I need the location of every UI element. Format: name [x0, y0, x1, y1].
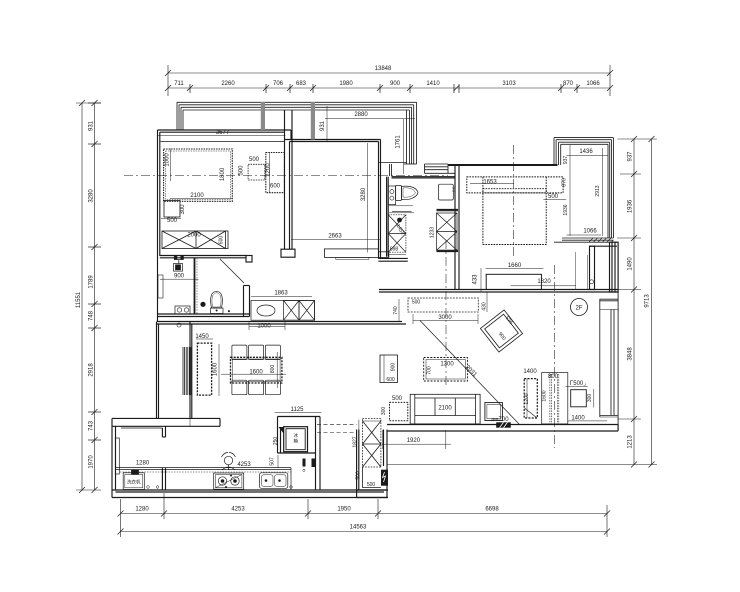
svg-text:2100: 2100 — [190, 193, 204, 199]
svg-text:800: 800 — [270, 365, 276, 374]
svg-text:4253: 4253 — [237, 462, 251, 468]
svg-text:430: 430 — [482, 302, 488, 311]
svg-text:740: 740 — [393, 306, 399, 315]
svg-text:2100: 2100 — [438, 406, 452, 412]
svg-text:3677: 3677 — [216, 130, 230, 136]
svg-text:洗衣机: 洗衣机 — [127, 479, 141, 486]
svg-text:743: 743 — [89, 420, 95, 431]
svg-text:1936: 1936 — [563, 204, 569, 215]
svg-text:1436: 1436 — [579, 149, 593, 155]
svg-text:1863: 1863 — [274, 291, 288, 297]
svg-text:1125: 1125 — [291, 407, 305, 413]
svg-text:600: 600 — [270, 184, 281, 190]
svg-text:1200: 1200 — [266, 163, 272, 177]
svg-text:2663: 2663 — [328, 234, 342, 240]
svg-text:3280: 3280 — [89, 189, 95, 203]
svg-text:1213: 1213 — [628, 435, 634, 449]
svg-text:2913: 2913 — [595, 185, 601, 196]
svg-text:683: 683 — [296, 81, 307, 87]
svg-text:1600: 1600 — [249, 370, 263, 376]
svg-text:1000: 1000 — [257, 324, 271, 330]
svg-text:300: 300 — [381, 407, 387, 416]
svg-text:1066: 1066 — [583, 229, 597, 235]
svg-text:9713: 9713 — [645, 294, 651, 308]
svg-text:3848: 3848 — [628, 347, 634, 361]
svg-text:箱: 箱 — [293, 438, 298, 445]
svg-text:250: 250 — [273, 437, 279, 446]
svg-text:1233: 1233 — [430, 227, 436, 238]
svg-text:⌀=700: ⌀=700 — [491, 417, 509, 423]
svg-text:2880: 2880 — [354, 112, 368, 118]
svg-text:3280: 3280 — [361, 187, 367, 201]
svg-text:500: 500 — [239, 165, 245, 176]
svg-text:1800: 1800 — [220, 167, 226, 181]
svg-text:433: 433 — [473, 274, 479, 285]
svg-text:1400: 1400 — [523, 369, 537, 375]
svg-text:3103: 3103 — [502, 81, 516, 87]
svg-text:900: 900 — [390, 81, 401, 87]
svg-text:870: 870 — [562, 178, 568, 187]
svg-text:748: 748 — [89, 310, 95, 321]
svg-text:300: 300 — [587, 394, 593, 403]
svg-text:706: 706 — [273, 81, 284, 87]
svg-text:1970: 1970 — [89, 455, 95, 469]
svg-text:700: 700 — [427, 366, 433, 375]
svg-text:1410: 1410 — [426, 81, 440, 87]
svg-text:1827: 1827 — [353, 436, 359, 447]
svg-text:1280: 1280 — [135, 507, 149, 513]
svg-text:931: 931 — [320, 120, 326, 131]
svg-text:1600: 1600 — [213, 362, 219, 376]
svg-text:13848: 13848 — [375, 66, 392, 72]
svg-text:900: 900 — [174, 274, 185, 280]
svg-text:300: 300 — [180, 204, 186, 215]
svg-text:500: 500 — [412, 300, 421, 306]
svg-text:1920: 1920 — [407, 438, 421, 444]
svg-text:500: 500 — [548, 194, 559, 200]
svg-text:6698: 6698 — [485, 507, 499, 513]
svg-text:900: 900 — [391, 363, 397, 372]
svg-text:2918: 2918 — [89, 363, 95, 377]
svg-text:1490: 1490 — [628, 257, 634, 271]
svg-text:937: 937 — [563, 156, 569, 165]
svg-text:600: 600 — [386, 377, 395, 383]
svg-text:1280: 1280 — [136, 460, 150, 466]
svg-text:1980: 1980 — [339, 81, 353, 87]
svg-text:1600: 1600 — [542, 390, 548, 401]
svg-text:1950: 1950 — [337, 507, 351, 513]
svg-text:500: 500 — [356, 471, 362, 480]
svg-text:11551: 11551 — [76, 291, 82, 308]
svg-text:600: 600 — [219, 236, 225, 245]
svg-text:1789: 1789 — [89, 275, 95, 289]
svg-text:698: 698 — [390, 247, 399, 253]
svg-text:1066: 1066 — [586, 81, 600, 87]
svg-text:500: 500 — [249, 157, 260, 163]
svg-text:1200: 1200 — [524, 393, 530, 404]
svg-text:800: 800 — [548, 374, 559, 380]
svg-text:500: 500 — [392, 396, 403, 402]
svg-text:1761: 1761 — [396, 135, 402, 149]
svg-text:711: 711 — [174, 81, 184, 87]
svg-text:14563: 14563 — [350, 525, 367, 531]
svg-text:3000: 3000 — [438, 315, 452, 321]
svg-text:500: 500 — [367, 482, 376, 488]
svg-text:2000: 2000 — [187, 233, 201, 239]
svg-text:1820: 1820 — [537, 279, 551, 285]
svg-text:4253: 4253 — [231, 507, 245, 513]
svg-text:1400: 1400 — [571, 416, 585, 422]
svg-text:1000: 1000 — [165, 153, 171, 167]
svg-text:870: 870 — [563, 81, 574, 87]
svg-text:507: 507 — [270, 457, 276, 466]
svg-text:Γ500⌟: Γ500⌟ — [570, 381, 586, 387]
svg-text:2F: 2F — [575, 306, 582, 312]
svg-text:500: 500 — [167, 218, 178, 224]
svg-text:937: 937 — [628, 151, 634, 162]
svg-text:1660: 1660 — [508, 263, 522, 269]
svg-text:931: 931 — [89, 120, 95, 131]
svg-text:冰: 冰 — [293, 432, 298, 438]
svg-text:1653: 1653 — [483, 180, 497, 186]
svg-text:1300: 1300 — [440, 362, 454, 368]
svg-text:1450: 1450 — [195, 334, 209, 340]
svg-text:1936: 1936 — [628, 199, 634, 213]
svg-text:2260: 2260 — [221, 81, 235, 87]
